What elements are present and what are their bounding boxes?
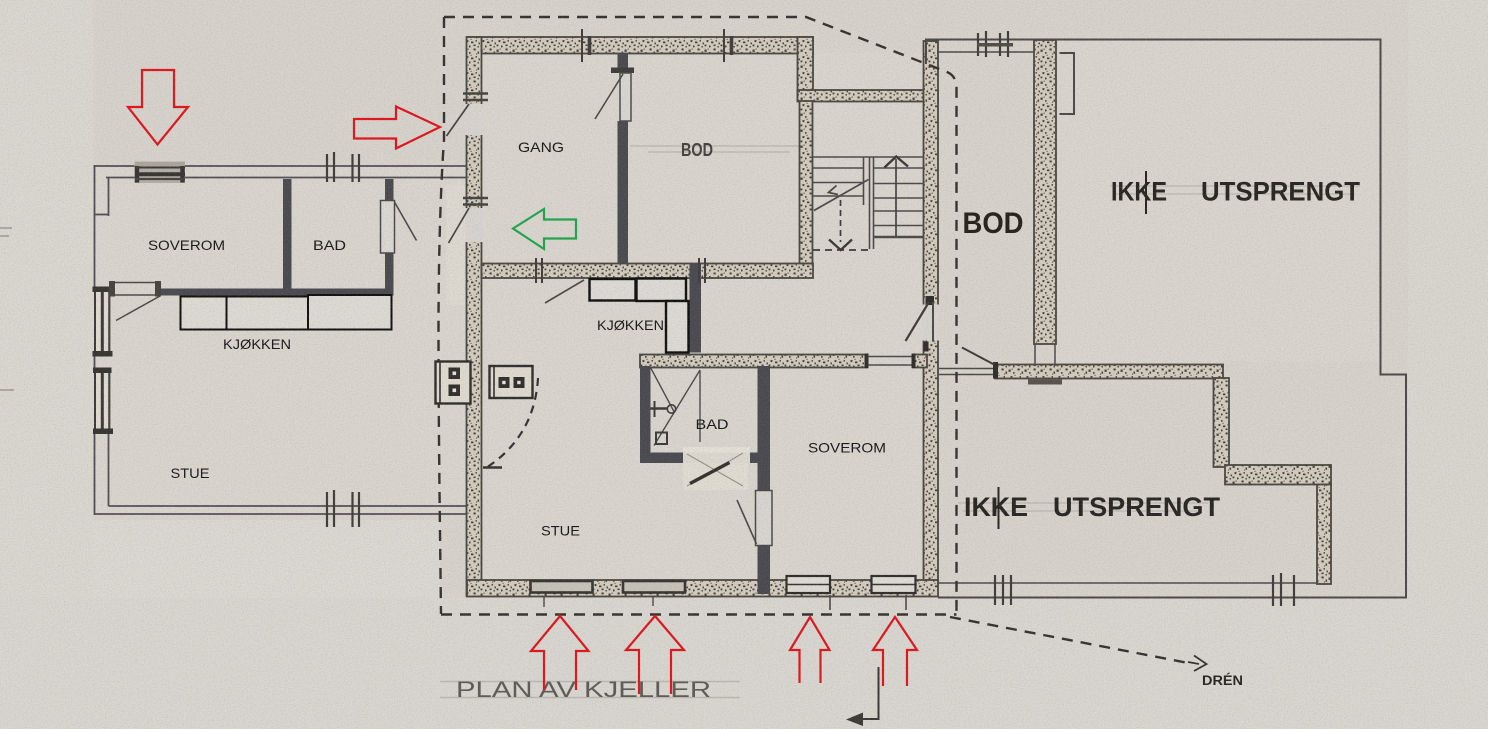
svg-text:BAD: BAD bbox=[313, 237, 346, 253]
svg-text:IKKE: IKKE bbox=[964, 492, 1028, 522]
svg-text:STUE: STUE bbox=[541, 523, 580, 539]
svg-text:KJØKKEN: KJØKKEN bbox=[223, 336, 291, 352]
svg-text:SOVEROM: SOVEROM bbox=[148, 237, 225, 253]
svg-text:UTSPRENGT: UTSPRENGT bbox=[1201, 177, 1360, 207]
svg-text:GANG: GANG bbox=[518, 139, 564, 155]
svg-text:STUE: STUE bbox=[171, 465, 210, 481]
svg-text:BOD: BOD bbox=[681, 140, 713, 160]
svg-text:BOD: BOD bbox=[963, 207, 1024, 240]
svg-text:BAD: BAD bbox=[696, 416, 729, 432]
svg-text:KJØKKEN: KJØKKEN bbox=[597, 317, 664, 333]
svg-text:SOVEROM: SOVEROM bbox=[808, 440, 886, 456]
svg-text:UTSPRENGT: UTSPRENGT bbox=[1053, 492, 1221, 522]
svg-text:PLAN AV KJELLER: PLAN AV KJELLER bbox=[456, 677, 711, 702]
svg-text:DRÉN: DRÉN bbox=[1202, 673, 1243, 688]
svg-text:IKKE: IKKE bbox=[1111, 177, 1167, 207]
